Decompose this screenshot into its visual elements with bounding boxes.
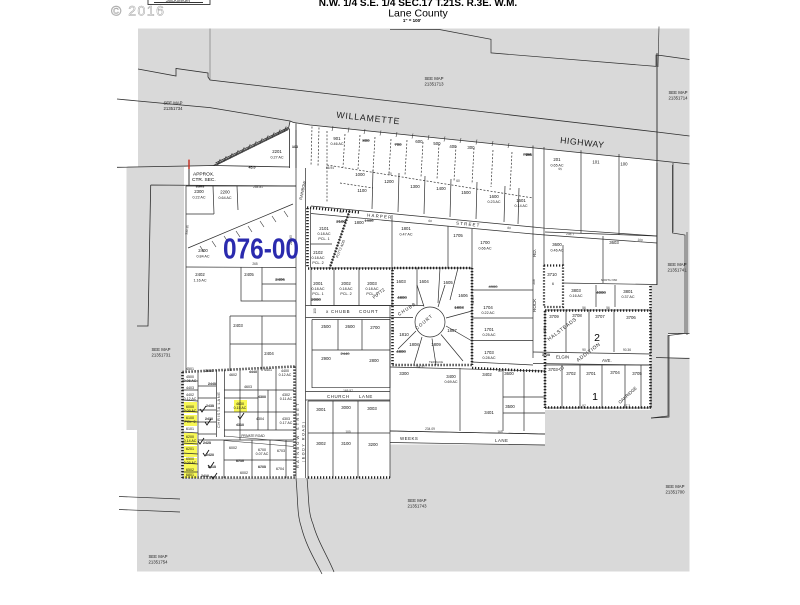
svg-text:0.25 AC: 0.25 AC: [482, 333, 495, 337]
svg-text:Sacksteder: Sacksteder: [165, 0, 190, 4]
svg-text:0.46 AC: 0.46 AC: [550, 249, 563, 253]
svg-text:4304: 4304: [256, 417, 264, 421]
svg-text:1500: 1500: [461, 190, 471, 195]
svg-text:2403: 2403: [233, 323, 243, 328]
svg-text:CHRISTA LANE: CHRISTA LANE: [217, 391, 221, 428]
svg-text:4310: 4310: [236, 423, 244, 427]
svg-text:0.18 AC: 0.18 AC: [339, 287, 352, 291]
svg-text:2301: 2301: [196, 185, 204, 189]
svg-text:6201: 6201: [186, 447, 194, 451]
svg-text:LANE: LANE: [359, 394, 373, 399]
svg-text:264.81: 264.81: [253, 185, 263, 189]
svg-text:400: 400: [449, 144, 457, 149]
svg-text:3725: 3725: [542, 353, 550, 357]
svg-text:2003: 2003: [367, 281, 377, 286]
svg-text:2201: 2201: [272, 149, 282, 154]
svg-text:21351714: 21351714: [668, 96, 688, 101]
svg-text:4602: 4602: [229, 373, 237, 377]
svg-text:208.7: 208.7: [566, 232, 575, 237]
svg-text:© 2016: © 2016: [111, 3, 165, 19]
svg-text:100: 100: [637, 238, 643, 242]
svg-text:3701: 3701: [586, 371, 596, 376]
svg-text:0.22 AC: 0.22 AC: [192, 196, 205, 200]
svg-text:1700: 1700: [480, 240, 490, 245]
svg-text:2600: 2600: [345, 324, 355, 329]
svg-text:0.12 AC: 0.12 AC: [184, 397, 197, 401]
svg-text:SEE MAP: SEE MAP: [667, 262, 686, 267]
svg-text:2004: 2004: [523, 153, 531, 157]
svg-text:0.11 AC: 0.11 AC: [280, 397, 293, 401]
svg-text:0.15 AC: 0.15 AC: [234, 406, 247, 410]
svg-text:2800: 2800: [369, 358, 379, 363]
svg-text:2000: 2000: [311, 297, 321, 302]
svg-text:3400: 3400: [446, 374, 456, 379]
svg-text:2101: 2101: [319, 226, 329, 231]
svg-text:3401: 3401: [484, 410, 494, 415]
svg-text:3002: 3002: [316, 441, 326, 446]
svg-text:4501: 4501: [186, 367, 194, 371]
svg-text:6502: 6502: [186, 468, 194, 472]
svg-text:2900: 2900: [321, 356, 331, 361]
svg-text:2435: 2435: [206, 404, 214, 408]
svg-text:0.17 AC: 0.17 AC: [280, 421, 293, 425]
svg-text:2420: 2420: [206, 453, 214, 457]
svg-text:6101: 6101: [186, 427, 194, 431]
svg-text:6002: 6002: [229, 446, 237, 450]
svg-text:2430: 2430: [205, 417, 213, 421]
svg-text:PCL. 2: PCL. 2: [185, 420, 196, 424]
svg-text:2300: 2300: [194, 189, 204, 194]
svg-text:4300: 4300: [258, 395, 266, 399]
svg-text:APPROX.: APPROX.: [193, 172, 214, 178]
svg-text:1803: 1803: [454, 305, 464, 310]
svg-text:0.84 AC: 0.84 AC: [196, 255, 209, 259]
svg-text:101: 101: [592, 160, 600, 165]
svg-text:AVE.: AVE.: [602, 358, 612, 363]
svg-text:1100: 1100: [357, 188, 367, 193]
svg-text:3703: 3703: [548, 367, 558, 372]
svg-text:0.18 AC: 0.18 AC: [311, 256, 324, 260]
svg-text:56: 56: [606, 306, 610, 310]
svg-text:3500: 3500: [505, 404, 515, 409]
svg-text:3707: 3707: [595, 314, 605, 319]
svg-text:3705: 3705: [632, 371, 642, 376]
svg-text:2405: 2405: [244, 272, 254, 277]
svg-text:600: 600: [415, 139, 423, 144]
svg-text:165: 165: [497, 430, 503, 434]
svg-text:LANE: LANE: [495, 438, 508, 443]
svg-text:60: 60: [456, 179, 460, 183]
svg-text:ELGIN: ELGIN: [556, 355, 569, 360]
svg-text:4440: 4440: [249, 370, 257, 374]
svg-text:1.16 AC: 1.16 AC: [193, 279, 206, 283]
svg-text:SEE MAP: SEE MAP: [665, 484, 684, 489]
svg-text:PCL. 2: PCL. 2: [312, 261, 323, 265]
svg-text:1810: 1810: [399, 332, 409, 337]
svg-text:3710: 3710: [547, 272, 557, 277]
svg-text:RAINBOW STREET: RAINBOW STREET: [295, 401, 300, 468]
svg-text:1800: 1800: [354, 220, 364, 225]
svg-text:45.0: 45.0: [249, 166, 256, 170]
svg-text:6705: 6705: [258, 465, 266, 469]
svg-text:164.57: 164.57: [415, 365, 425, 369]
svg-text:80: 80: [498, 369, 502, 373]
svg-text:3300: 3300: [399, 371, 409, 376]
svg-text:4000: 4000: [596, 290, 606, 295]
svg-text:SEE MAP: SEE MAP: [668, 90, 687, 95]
svg-text:2402: 2402: [195, 272, 205, 277]
svg-text:2406: 2406: [275, 277, 285, 282]
svg-text:1000: 1000: [355, 172, 365, 177]
svg-text:PCL. 3: PCL. 3: [366, 292, 377, 296]
svg-text:SEE MAP: SEE MAP: [163, 101, 182, 106]
svg-text:56: 56: [582, 306, 586, 310]
svg-text:4403: 4403: [186, 386, 194, 390]
svg-text:6002: 6002: [240, 471, 248, 475]
svg-text:60: 60: [388, 172, 392, 176]
svg-text:21351743: 21351743: [407, 504, 427, 509]
svg-text:1400: 1400: [436, 186, 446, 191]
svg-text:2700: 2700: [370, 325, 380, 330]
svg-text:3709: 3709: [549, 314, 559, 319]
svg-text:2445: 2445: [208, 382, 216, 386]
svg-text:0.66 AC: 0.66 AC: [478, 247, 491, 251]
svg-text:CHURCH: CHURCH: [327, 394, 350, 399]
svg-text:4800: 4800: [397, 295, 407, 300]
svg-text:2440: 2440: [341, 351, 351, 356]
svg-text:PRIVATE ROAD: PRIVATE ROAD: [241, 434, 265, 438]
svg-text:1807: 1807: [447, 328, 457, 333]
svg-text:0.07 AC: 0.07 AC: [256, 452, 269, 456]
svg-text:60: 60: [339, 210, 343, 214]
svg-text:1: 1: [592, 391, 598, 403]
svg-text:2425: 2425: [203, 441, 211, 445]
svg-text:217.95: 217.95: [289, 235, 293, 245]
svg-text:165: 165: [543, 327, 547, 333]
svg-text:300: 300: [467, 145, 475, 150]
svg-text:3801: 3801: [623, 289, 633, 294]
svg-text:WEEKS: WEEKS: [400, 436, 418, 441]
svg-text:TERRACE: TERRACE: [429, 360, 443, 364]
svg-text:1606: 1606: [458, 293, 468, 298]
svg-text:100: 100: [391, 327, 395, 333]
svg-text:0.47 AC: 0.47 AC: [399, 233, 412, 237]
svg-text:0.16 AC: 0.16 AC: [569, 294, 582, 298]
svg-text:1300: 1300: [410, 184, 420, 189]
svg-text:6: 6: [552, 282, 554, 286]
svg-text:2500: 2500: [321, 324, 331, 329]
svg-text:0.18 AC: 0.18 AC: [317, 232, 330, 236]
svg-text:SEE MAP: SEE MAP: [407, 498, 426, 503]
svg-text:100: 100: [313, 308, 317, 314]
svg-text:3600: 3600: [552, 242, 562, 247]
svg-text:0.14 AC: 0.14 AC: [184, 439, 197, 443]
svg-text:1601: 1601: [516, 198, 526, 203]
svg-text:103: 103: [292, 145, 298, 149]
svg-text:901: 901: [333, 136, 341, 141]
svg-text:500: 500: [433, 141, 441, 146]
svg-text:21351713: 21351713: [424, 82, 444, 87]
svg-text:PCL. 2: PCL. 2: [340, 292, 351, 296]
svg-text:21351734: 21351734: [163, 106, 183, 111]
svg-text:3704: 3704: [610, 370, 620, 375]
svg-text:0.06 AC: 0.06 AC: [184, 379, 197, 383]
svg-text:4401: 4401: [264, 368, 272, 372]
svg-text:1701: 1701: [484, 327, 494, 332]
svg-text:076-00: 076-00: [223, 234, 299, 266]
svg-text:SEE MAP: SEE MAP: [151, 347, 170, 352]
svg-text:PCL. 1: PCL. 1: [312, 292, 323, 296]
svg-text:6710: 6710: [236, 459, 244, 463]
svg-text:1808: 1808: [409, 342, 419, 347]
svg-text:2404: 2404: [264, 351, 274, 356]
svg-text:0.64 AC: 0.64 AC: [218, 196, 231, 200]
svg-text:90: 90: [582, 348, 586, 352]
svg-text:1604: 1604: [419, 279, 429, 284]
svg-text:2200: 2200: [220, 190, 230, 195]
svg-text:21351754: 21351754: [148, 560, 168, 565]
svg-text:90.36: 90.36: [623, 348, 631, 352]
svg-text:3200: 3200: [368, 442, 378, 447]
svg-text:21351700: 21351700: [665, 490, 685, 495]
svg-text:6801: 6801: [186, 473, 194, 477]
svg-text:1600: 1600: [489, 194, 499, 199]
svg-text:3706: 3706: [626, 315, 636, 320]
svg-text:0.22 AC: 0.22 AC: [481, 311, 494, 315]
svg-text:COURT: COURT: [359, 309, 379, 314]
svg-text:3001: 3001: [316, 407, 326, 412]
svg-text:3003: 3003: [367, 406, 377, 411]
svg-text:1605: 1605: [443, 280, 453, 285]
svg-text:0.12 AC: 0.12 AC: [279, 373, 292, 377]
svg-text:3000: 3000: [341, 405, 351, 410]
svg-text:97: 97: [582, 404, 586, 408]
svg-text:2400: 2400: [198, 248, 208, 253]
svg-text:0.37 AC: 0.37 AC: [621, 295, 634, 299]
svg-text:0.23 AC: 0.23 AC: [487, 200, 500, 204]
svg-text:97.3: 97.3: [624, 404, 630, 408]
svg-text:6704: 6704: [276, 467, 284, 471]
svg-text:117.5: 117.5: [471, 296, 475, 304]
svg-text:3702: 3702: [566, 371, 576, 376]
svg-text:700: 700: [394, 142, 402, 147]
svg-text:1703: 1703: [484, 350, 494, 355]
svg-text:3803: 3803: [571, 288, 581, 293]
svg-text:100: 100: [620, 162, 628, 167]
svg-text:1200: 1200: [384, 179, 394, 184]
svg-text:1704: 1704: [483, 305, 493, 310]
svg-text:SEE MAP: SEE MAP: [424, 76, 443, 81]
svg-text:0.46 AC: 0.46 AC: [330, 142, 343, 146]
svg-text:265: 265: [252, 262, 258, 266]
svg-text:60: 60: [428, 219, 432, 223]
svg-text:2410: 2410: [201, 474, 209, 478]
svg-text:80: 80: [507, 226, 511, 230]
svg-text:100: 100: [345, 430, 351, 434]
svg-text:165.57: 165.57: [343, 389, 353, 393]
svg-text:1801: 1801: [401, 226, 411, 231]
svg-text:2: 2: [594, 332, 600, 344]
svg-text:SEE MAP: SEE MAP: [148, 554, 167, 559]
svg-text:0.27 AC: 0.27 AC: [270, 156, 283, 160]
svg-text:0.28 AC: 0.28 AC: [482, 356, 495, 360]
svg-text:3603: 3603: [609, 240, 619, 245]
svg-text:201: 201: [553, 157, 561, 162]
svg-text:3100: 3100: [341, 441, 351, 446]
svg-text:3402: 3402: [482, 372, 492, 377]
svg-text:234.09: 234.09: [425, 427, 435, 431]
svg-text:2002: 2002: [341, 281, 351, 286]
svg-text:2001: 2001: [313, 281, 323, 286]
svg-text:1705: 1705: [453, 233, 463, 238]
svg-text:2102: 2102: [313, 250, 323, 255]
svg-text:3600: 3600: [504, 371, 514, 376]
svg-text:1" = 100': 1" = 100': [403, 18, 421, 23]
svg-text:208: 208: [532, 279, 536, 285]
svg-text:PCL. 1: PCL. 1: [318, 237, 329, 241]
svg-text:95: 95: [558, 167, 562, 171]
svg-text:(BODY ROAD): (BODY ROAD): [302, 421, 306, 463]
svg-text:1809: 1809: [431, 342, 441, 347]
svg-text:4800: 4800: [396, 349, 406, 354]
svg-text:66.94: 66.94: [326, 166, 334, 170]
svg-text:2440: 2440: [205, 369, 213, 373]
svg-text:0.69 AC: 0.69 AC: [444, 380, 457, 384]
svg-text:3708: 3708: [572, 313, 582, 318]
svg-text:6703: 6703: [277, 449, 285, 453]
svg-text:21351741: 21351741: [667, 268, 687, 273]
svg-text:1900: 1900: [365, 218, 375, 223]
svg-text:0.18 AC: 0.18 AC: [365, 287, 378, 291]
svg-text:4900: 4900: [489, 284, 499, 289]
svg-text:0.09 AC: 0.09 AC: [184, 409, 197, 413]
svg-text:RD.: RD.: [532, 249, 537, 257]
svg-text:21351731: 21351731: [151, 353, 171, 358]
svg-text:0.14 AC: 0.14 AC: [514, 204, 527, 208]
svg-text:NORTH 660: NORTH 660: [601, 278, 618, 282]
svg-text:4603: 4603: [244, 385, 252, 389]
svg-text:2100: 2100: [336, 219, 346, 224]
svg-text:1603: 1603: [396, 279, 406, 284]
svg-text:0.09 AC: 0.09 AC: [184, 461, 197, 465]
svg-text:CTR. SEC.: CTR. SEC.: [192, 177, 216, 183]
svg-text:0.18 AC: 0.18 AC: [311, 287, 324, 291]
svg-text:CHUBB: CHUBB: [331, 309, 350, 314]
svg-text:ROCK: ROCK: [532, 298, 537, 312]
svg-text:800: 800: [362, 138, 370, 143]
